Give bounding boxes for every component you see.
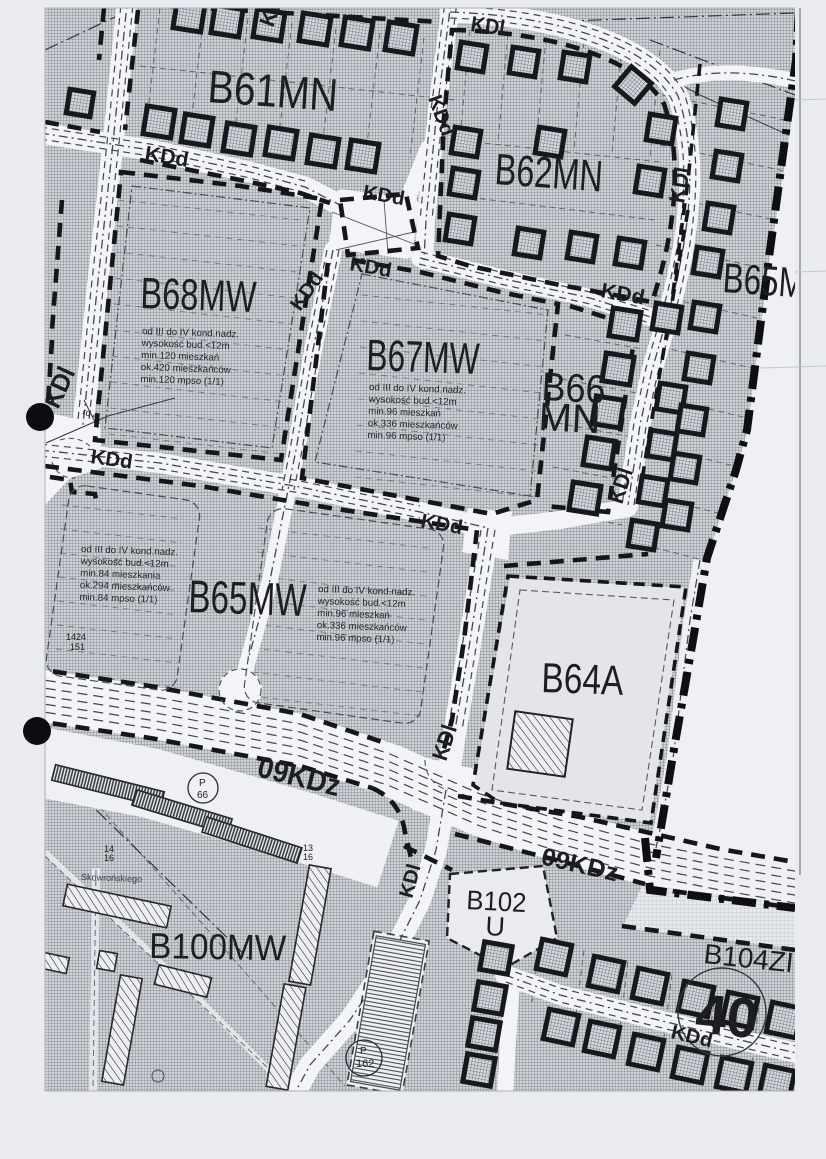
svg-text:1424: 1424 (66, 632, 86, 642)
svg-text:B100MW: B100MW (149, 925, 287, 968)
svg-text:B65MW: B65MW (188, 570, 308, 626)
svg-text:B68MW: B68MW (140, 269, 258, 322)
svg-text:MN: MN (538, 395, 602, 442)
svg-text:B67MW: B67MW (366, 331, 481, 384)
svg-text:B64A: B64A (541, 654, 625, 704)
svg-text:16: 16 (303, 852, 313, 862)
svg-text:KDl: KDl (469, 11, 506, 40)
svg-text:B65M: B65M (721, 254, 806, 307)
svg-text:162: 162 (356, 1058, 374, 1070)
svg-text:P: P (199, 778, 206, 789)
svg-text:B62MN: B62MN (493, 145, 604, 201)
svg-text:151: 151 (70, 642, 85, 652)
svg-text:16: 16 (104, 853, 114, 863)
svg-text:B61MN: B61MN (206, 60, 339, 121)
svg-text:P: P (360, 1046, 367, 1057)
svg-text:66: 66 (197, 790, 209, 801)
svg-text:U: U (485, 911, 506, 942)
svg-text:Skowrońskiego: Skowrońskiego (81, 872, 142, 884)
